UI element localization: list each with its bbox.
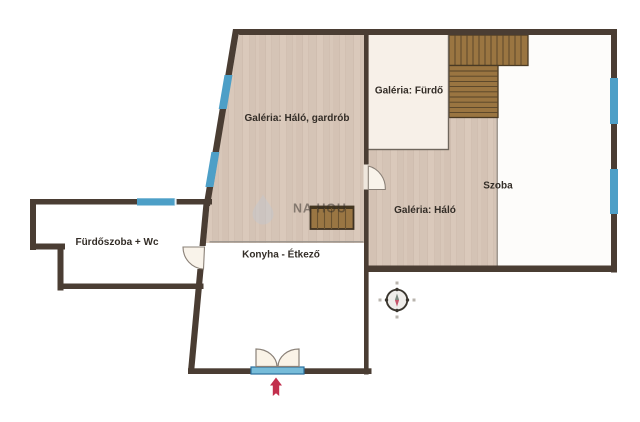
svg-text:Fürdőszoba + Wc: Fürdőszoba + Wc (75, 237, 159, 248)
svg-text:Szoba: Szoba (483, 181, 513, 192)
svg-text:Konyha - Étkező: Konyha - Étkező (242, 248, 320, 261)
svg-text:Galéria: Háló, gardrób: Galéria: Háló, gardrób (244, 113, 349, 124)
svg-text:NA HOU: NA HOU (293, 202, 347, 216)
svg-text:Galéria: Háló: Galéria: Háló (394, 205, 456, 216)
svg-text:Galéria: Fürdő: Galéria: Fürdő (375, 86, 443, 97)
